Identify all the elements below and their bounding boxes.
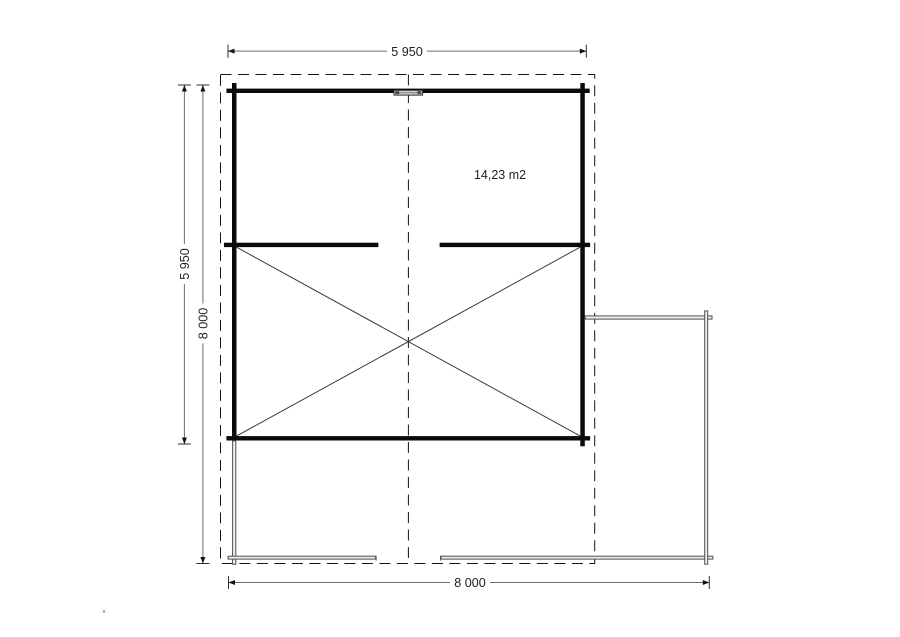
svg-text:8 000: 8 000 bbox=[196, 308, 210, 340]
svg-text:5 950: 5 950 bbox=[391, 45, 423, 59]
svg-text:14,23 m2: 14,23 m2 bbox=[474, 168, 526, 182]
svg-text:8 000: 8 000 bbox=[454, 576, 486, 590]
svg-text:5 950: 5 950 bbox=[178, 248, 192, 280]
